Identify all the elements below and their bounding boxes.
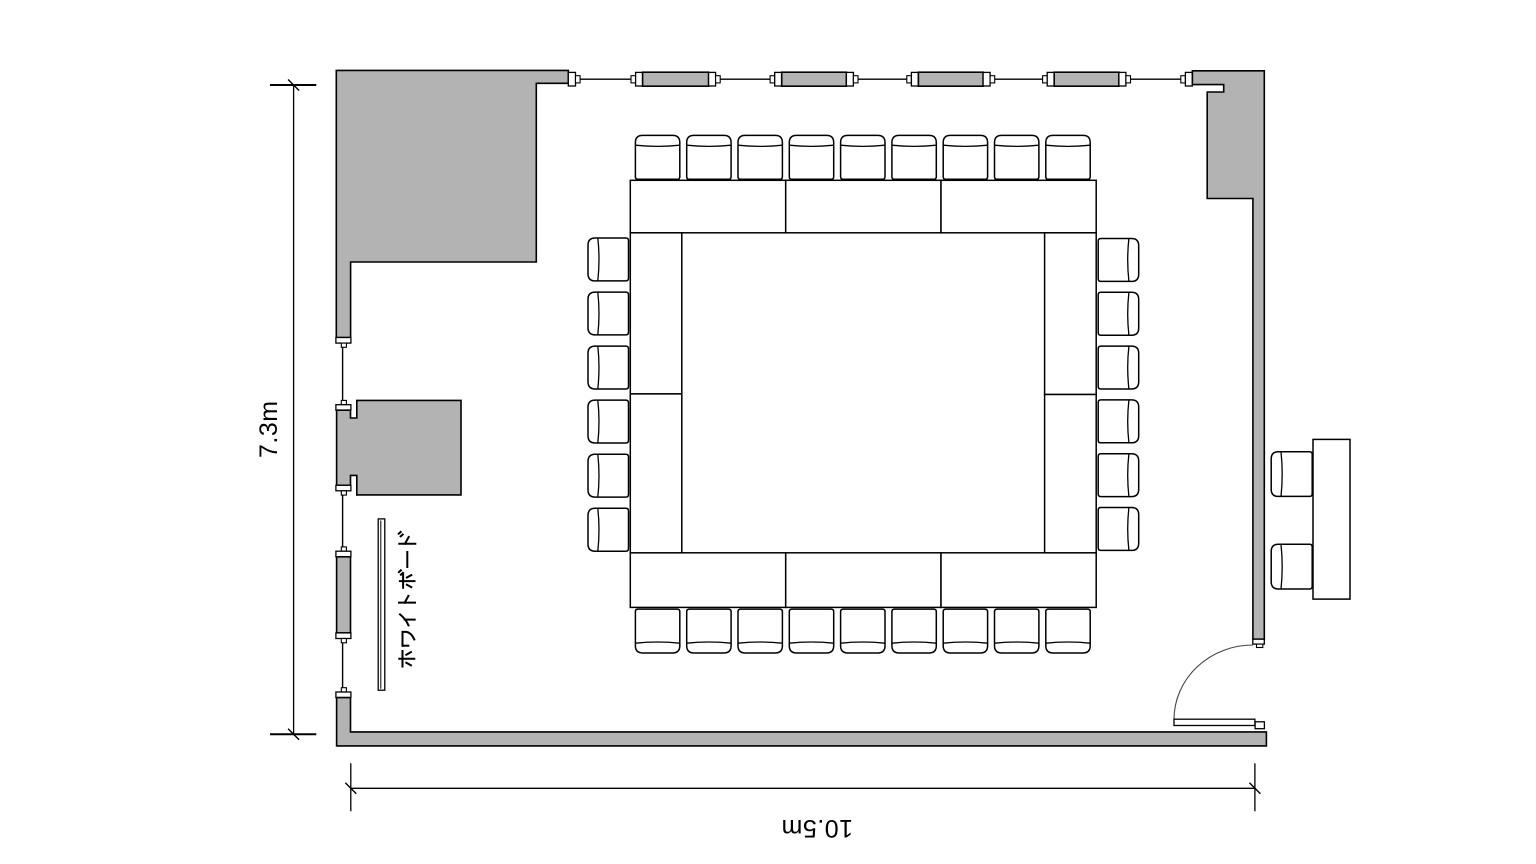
svg-text:10.5m: 10.5m [781,814,853,842]
svg-text:7.3m: 7.3m [255,400,283,458]
